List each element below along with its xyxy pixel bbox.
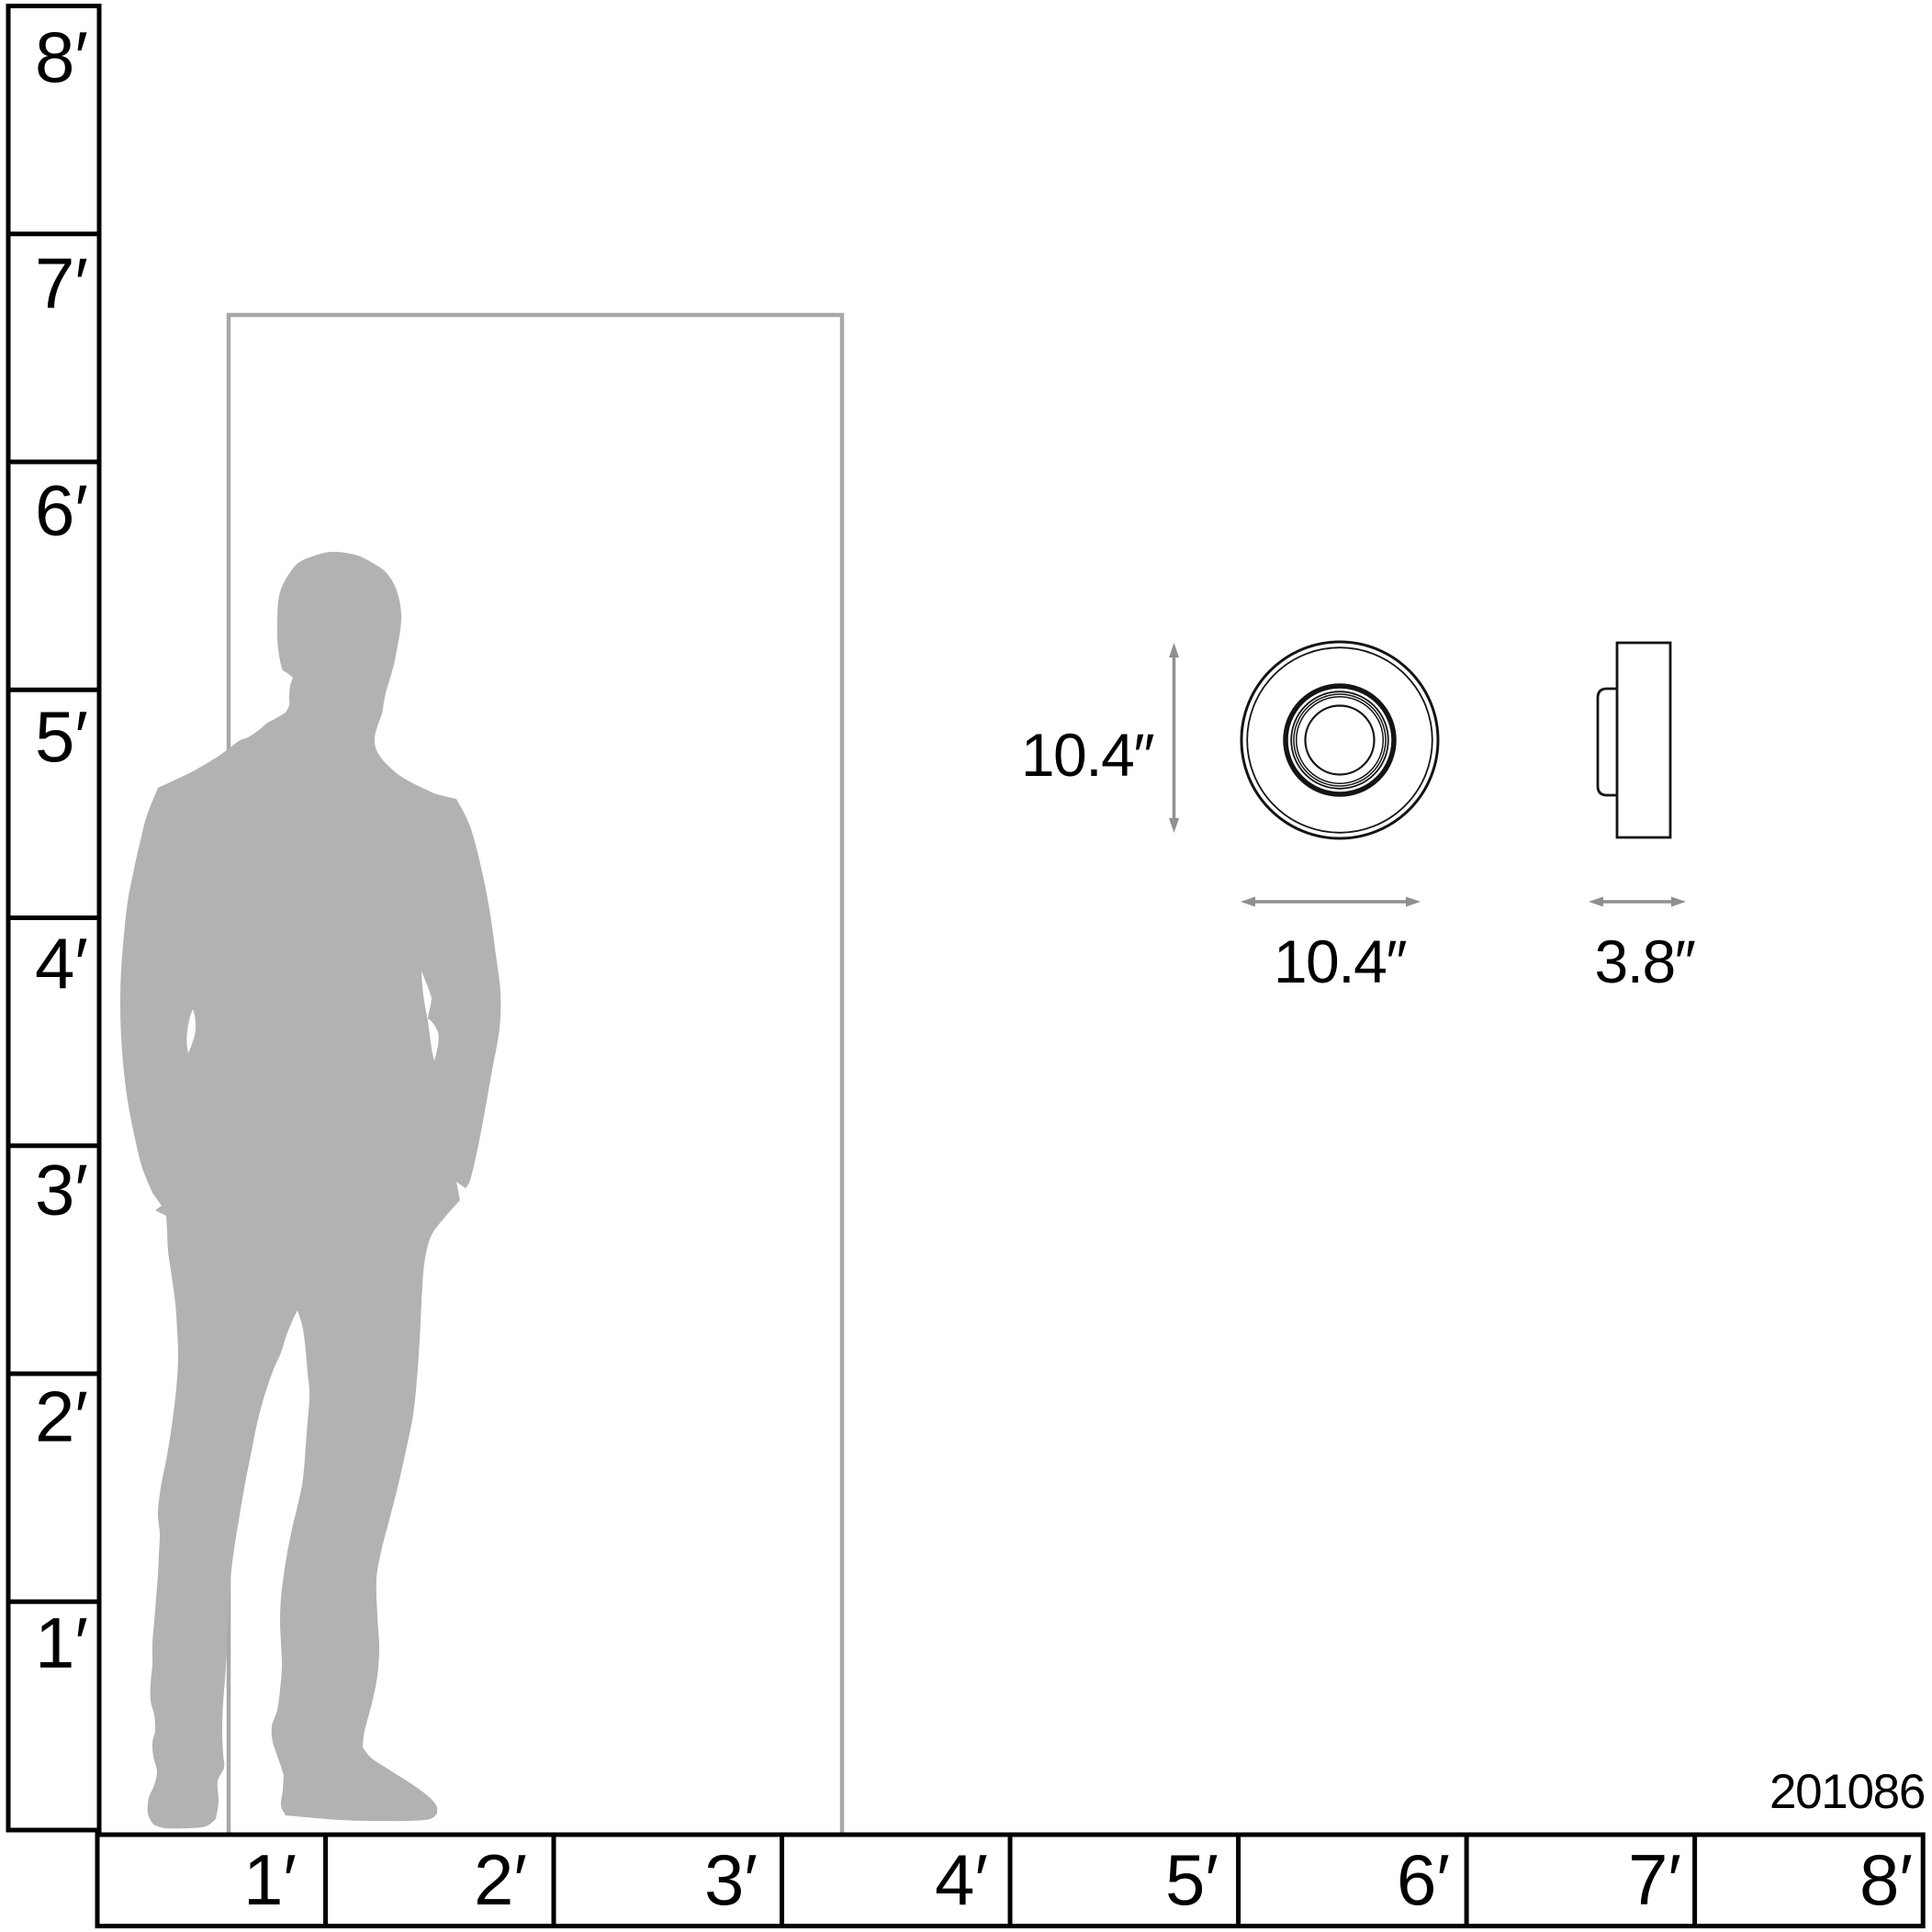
svg-text:3′: 3′: [35, 1150, 88, 1230]
svg-text:2′: 2′: [474, 1839, 527, 1920]
svg-text:4′: 4′: [35, 923, 88, 1004]
svg-text:201086: 201086: [1769, 1765, 1925, 1819]
svg-text:5′: 5′: [1165, 1839, 1219, 1920]
svg-text:3′: 3′: [704, 1839, 758, 1920]
svg-text:7′: 7′: [35, 243, 88, 324]
svg-text:1′: 1′: [243, 1839, 297, 1920]
svg-text:8′: 8′: [1859, 1839, 1913, 1920]
svg-text:1′: 1′: [35, 1602, 88, 1683]
svg-text:5′: 5′: [35, 696, 88, 777]
svg-text:4′: 4′: [935, 1839, 988, 1920]
svg-text:8′: 8′: [35, 17, 88, 97]
svg-text:2′: 2′: [35, 1376, 88, 1456]
svg-text:7′: 7′: [1628, 1839, 1681, 1920]
svg-text:10.4″: 10.4″: [1274, 927, 1407, 995]
svg-text:3.8″: 3.8″: [1594, 927, 1695, 995]
svg-text:6′: 6′: [1397, 1839, 1450, 1920]
svg-text:6′: 6′: [35, 469, 88, 550]
svg-text:10.4″: 10.4″: [1021, 721, 1154, 789]
